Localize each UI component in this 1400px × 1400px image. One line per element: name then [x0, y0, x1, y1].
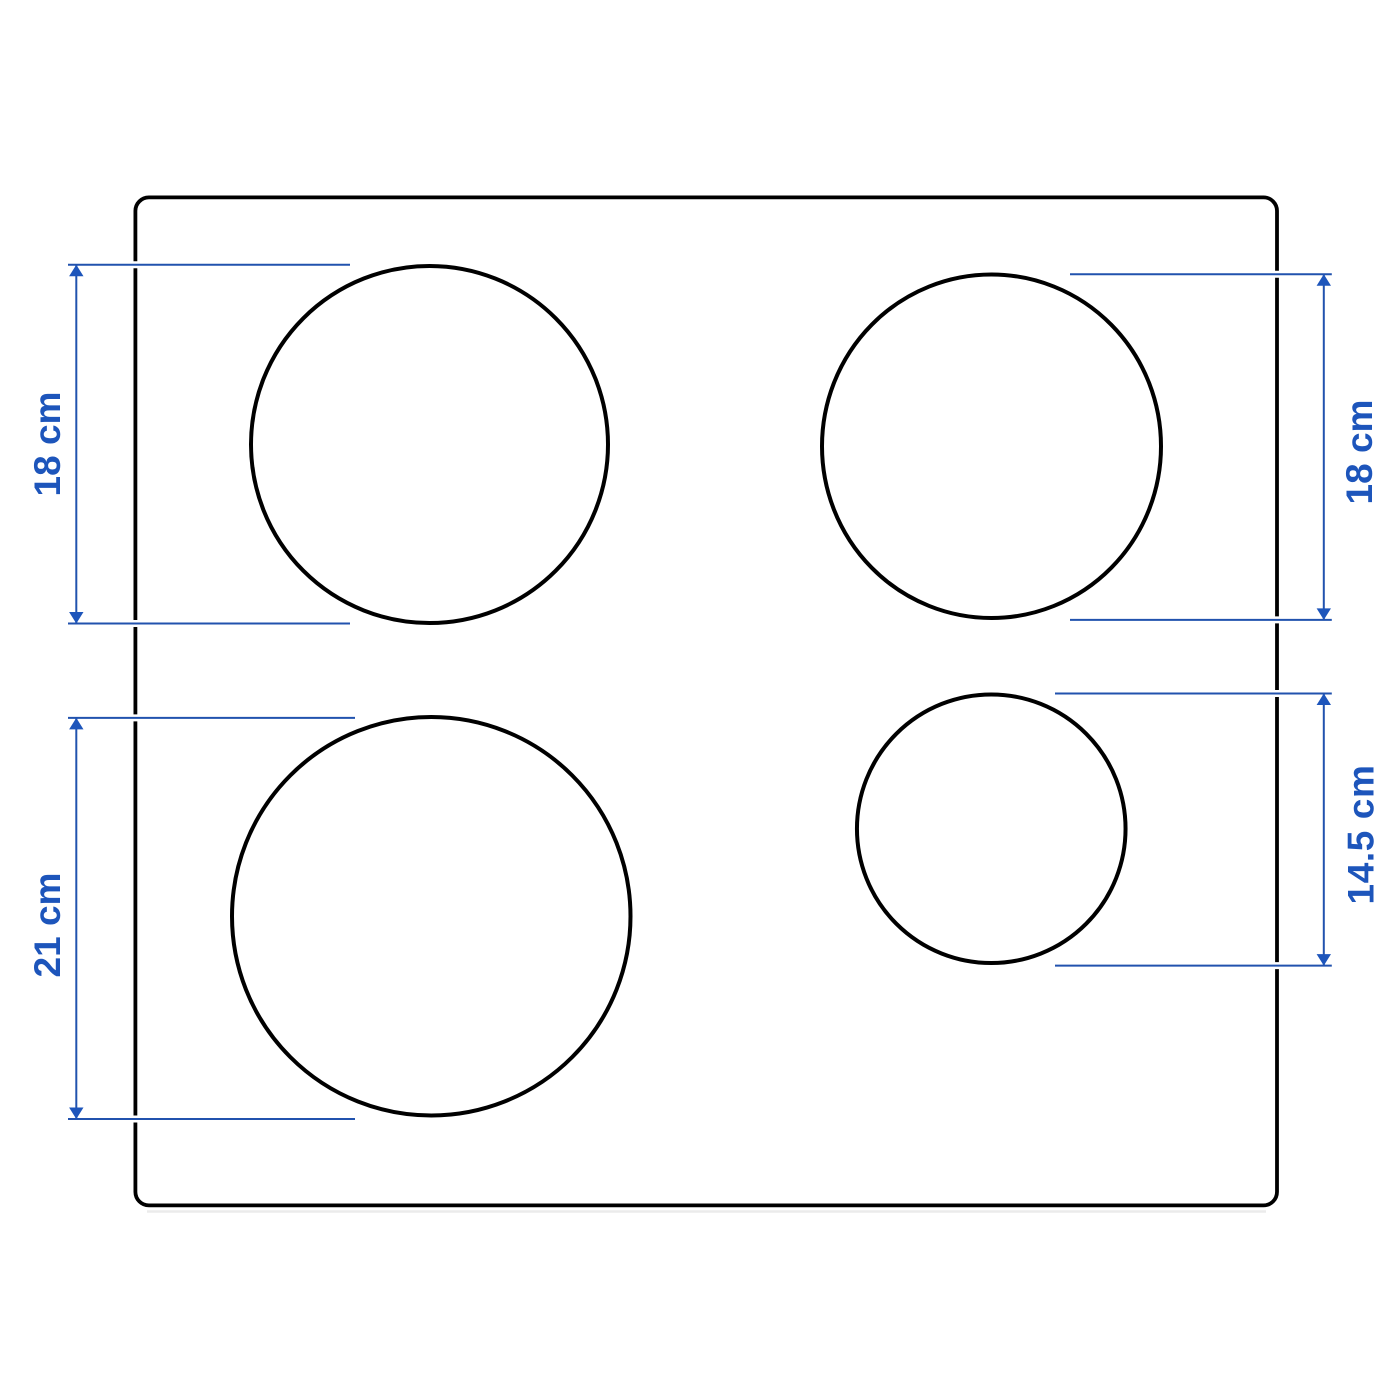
svg-text:18 cm: 18 cm — [27, 392, 68, 497]
svg-text:18 cm: 18 cm — [1339, 400, 1380, 505]
svg-text:14.5 cm: 14.5 cm — [1341, 765, 1382, 905]
svg-text:21 cm: 21 cm — [27, 873, 68, 978]
